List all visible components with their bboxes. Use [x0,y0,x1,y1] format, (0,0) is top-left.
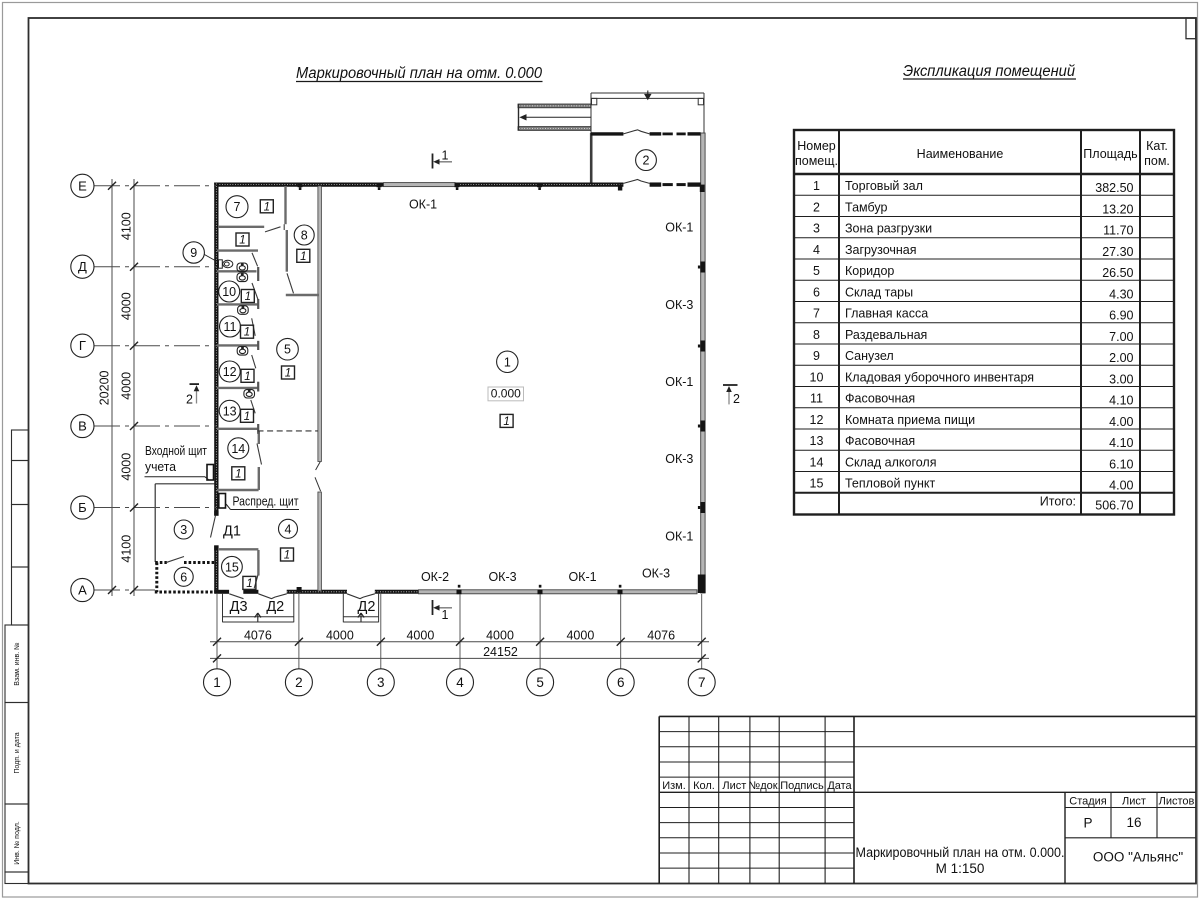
svg-text:24152: 24152 [483,645,518,659]
svg-text:27.30: 27.30 [1102,245,1133,259]
svg-text:ОК-1: ОК-1 [665,375,693,389]
svg-text:7: 7 [234,200,241,214]
svg-text:1: 1 [213,675,221,690]
svg-text:Тамбур: Тамбур [845,200,887,214]
svg-text:506.70: 506.70 [1095,499,1133,513]
svg-text:В: В [78,419,87,434]
svg-text:Д2: Д2 [266,599,284,615]
svg-text:2: 2 [813,200,820,214]
svg-text:Наименование: Наименование [917,147,1004,161]
svg-text:4100: 4100 [120,535,134,563]
svg-text:1: 1 [285,368,291,380]
svg-text:6: 6 [617,675,625,690]
svg-text:ОК-3: ОК-3 [665,452,693,466]
svg-text:1: 1 [244,411,250,423]
svg-text:ОК-3: ОК-3 [642,567,670,581]
svg-text:Изм.: Изм. [662,780,686,792]
svg-text:2.00: 2.00 [1109,351,1133,365]
svg-text:2: 2 [643,154,650,168]
svg-text:Стадия: Стадия [1069,796,1107,808]
svg-text:А: А [78,583,87,598]
svg-text:Торговый зал: Торговый зал [845,179,923,193]
svg-text:1: 1 [442,149,449,163]
svg-text:8: 8 [813,328,820,342]
svg-text:5: 5 [813,264,820,278]
svg-text:9: 9 [190,246,197,260]
svg-text:11.70: 11.70 [1103,224,1133,238]
svg-text:ОК-3: ОК-3 [665,298,693,312]
svg-text:6.90: 6.90 [1109,309,1133,323]
svg-text:Дата: Дата [827,780,852,792]
svg-text:4: 4 [285,522,292,536]
svg-text:7: 7 [698,675,706,690]
svg-text:1: 1 [442,608,449,622]
svg-text:Г: Г [79,338,86,353]
svg-text:Д2: Д2 [358,599,376,615]
svg-text:4076: 4076 [244,629,272,643]
svg-text:4.10: 4.10 [1109,394,1133,408]
svg-text:4000: 4000 [120,453,134,481]
svg-text:Входной щит: Входной щит [145,444,207,458]
svg-text:8: 8 [301,229,308,243]
svg-text:Экспликация помещений: Экспликация помещений [903,63,1075,80]
svg-text:Лист: Лист [1122,796,1146,808]
svg-text:3: 3 [180,523,187,537]
svg-text:Фасовочная: Фасовочная [845,392,915,406]
svg-text:5: 5 [284,343,291,357]
svg-text:10: 10 [810,370,824,384]
svg-text:Подп. и дата: Подп. и дата [14,732,21,773]
svg-text:Д3: Д3 [230,599,248,615]
svg-text:1: 1 [300,251,306,263]
svg-text:Главная касса: Главная касса [845,307,928,321]
svg-text:Загрузочная: Загрузочная [845,243,917,257]
svg-text:20200: 20200 [98,370,112,405]
svg-text:ОК-1: ОК-1 [409,198,437,212]
svg-text:Номер: Номер [797,139,836,153]
svg-text:Инв. № подл.: Инв. № подл. [14,821,21,865]
svg-text:6: 6 [180,570,187,584]
svg-text:помещ.: помещ. [795,154,838,168]
svg-text:14: 14 [231,442,245,456]
svg-text:4.00: 4.00 [1109,415,1133,429]
svg-text:7.00: 7.00 [1109,330,1133,344]
svg-text:1: 1 [244,327,250,339]
svg-text:Кладовая уборочного инвентаря: Кладовая уборочного инвентаря [845,370,1034,384]
svg-text:16: 16 [1126,815,1141,830]
svg-text:Итого:: Итого: [1040,495,1076,509]
svg-text:382.50: 382.50 [1095,181,1133,195]
svg-text:9: 9 [813,349,820,363]
svg-text:1: 1 [504,355,511,369]
svg-text:Взам. инв. №: Взам. инв. № [14,642,21,685]
svg-text:ОК-3: ОК-3 [488,570,516,584]
svg-text:1: 1 [244,371,250,383]
svg-text:14: 14 [810,455,824,469]
svg-text:Е: Е [78,178,87,193]
svg-text:13: 13 [810,434,824,448]
svg-text:Маркировочный план на отм. 0.0: Маркировочный план на отм. 0.000 [296,65,542,82]
svg-text:15: 15 [225,560,239,574]
svg-text:2: 2 [186,393,193,407]
svg-text:3: 3 [377,675,385,690]
svg-text:Раздевальная: Раздевальная [845,328,927,342]
svg-text:3: 3 [813,222,820,236]
svg-text:4: 4 [456,675,464,690]
svg-text:2: 2 [295,675,303,690]
svg-text:ОК-2: ОК-2 [421,570,449,584]
svg-text:ОК-1: ОК-1 [665,529,693,543]
svg-text:12: 12 [223,365,237,379]
svg-text:12: 12 [810,413,824,427]
svg-text:Площадь: Площадь [1083,147,1137,161]
svg-text:Д1: Д1 [223,524,241,540]
svg-text:26.50: 26.50 [1102,266,1133,280]
svg-text:3.00: 3.00 [1109,372,1133,386]
svg-text:Листов: Листов [1159,796,1195,808]
svg-text:11: 11 [224,320,237,334]
svg-text:0.000: 0.000 [491,387,521,401]
svg-text:13: 13 [223,404,237,418]
svg-text:Лист: Лист [722,780,746,792]
svg-text:4100: 4100 [120,212,134,240]
svg-text:Д: Д [78,259,87,274]
svg-text:Комната приема пищи: Комната приема пищи [845,413,975,427]
svg-text:5: 5 [536,675,544,690]
svg-text:1: 1 [284,550,290,562]
svg-text:учета: учета [145,460,176,474]
svg-text:15: 15 [810,477,824,491]
svg-text:4000: 4000 [486,629,514,643]
svg-text:6.10: 6.10 [1109,457,1133,471]
svg-text:7: 7 [813,307,820,321]
svg-text:1: 1 [246,578,252,590]
svg-text:1: 1 [245,291,251,303]
svg-text:4.00: 4.00 [1109,479,1133,493]
svg-text:4.10: 4.10 [1109,436,1133,450]
svg-text:Подпись: Подпись [780,780,824,792]
svg-text:Б: Б [78,500,87,515]
svg-text:4000: 4000 [120,292,134,320]
svg-text:6: 6 [813,285,820,299]
svg-text:Склад алкоголя: Склад алкоголя [845,455,936,469]
svg-text:ОК-1: ОК-1 [665,221,693,235]
svg-text:ОК-1: ОК-1 [568,570,596,584]
svg-text:1: 1 [239,235,245,247]
svg-text:10: 10 [222,285,236,299]
svg-text:Распред. щит: Распред. щит [233,495,299,509]
svg-text:4000: 4000 [406,629,434,643]
svg-text:пом.: пом. [1144,154,1170,168]
svg-text:Зона разгрузки: Зона разгрузки [845,222,932,236]
svg-text:4.30: 4.30 [1109,287,1133,301]
svg-text:11: 11 [810,392,823,406]
svg-text:Санузел: Санузел [845,349,894,363]
svg-text:2: 2 [733,392,740,406]
svg-text:Тепловой пункт: Тепловой пункт [845,477,935,491]
svg-text:4: 4 [813,243,820,257]
svg-text:1: 1 [813,179,820,193]
svg-text:1: 1 [503,416,509,428]
svg-text:М 1:150: М 1:150 [936,861,985,876]
svg-text:1: 1 [264,201,270,213]
svg-text:Фасовочная: Фасовочная [845,434,915,448]
svg-text:№док.: №док. [748,780,780,792]
svg-text:Склад тары: Склад тары [845,285,913,299]
svg-text:Кат.: Кат. [1146,139,1168,153]
svg-text:Р: Р [1083,816,1092,831]
svg-text:4000: 4000 [120,372,134,400]
svg-text:Кол.: Кол. [693,780,715,792]
svg-text:4076: 4076 [647,629,675,643]
svg-text:13.20: 13.20 [1102,202,1133,216]
svg-text:ООО "Альянс": ООО "Альянс" [1093,850,1183,865]
svg-text:1: 1 [235,468,241,480]
svg-text:Коридор: Коридор [845,264,894,278]
svg-text:4000: 4000 [326,629,354,643]
svg-text:4000: 4000 [566,629,594,643]
svg-text:Маркировочный план на отм. 0.0: Маркировочный план на отм. 0.000. [856,845,1065,860]
